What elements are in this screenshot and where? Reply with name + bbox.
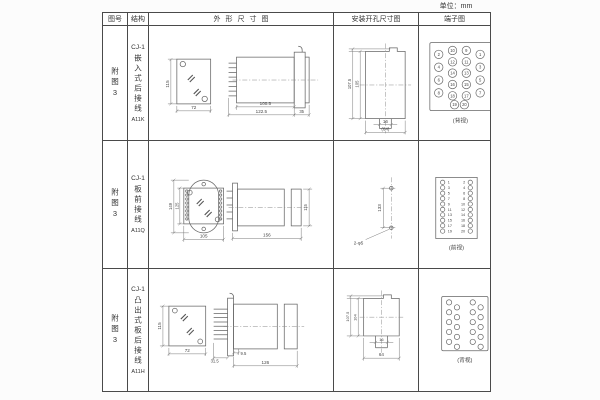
terminal-pin — [454, 314, 459, 319]
terminal-number: 2 — [438, 51, 441, 56]
terminal-pin — [219, 205, 221, 207]
holes-callout: 2-φ5 — [354, 240, 364, 245]
terminal-pin — [186, 193, 188, 195]
terminal-pin — [468, 218, 472, 222]
dim-front-width: 72 — [191, 104, 197, 109]
view-caption: (背视) — [457, 356, 472, 364]
terminal-number: 3 — [448, 186, 450, 190]
terminal-pin — [468, 228, 472, 232]
row1-outline-cell: 115 72 100.5 122.5 35 — [149, 26, 334, 141]
fig-no-label: 附图3 — [110, 188, 121, 221]
terminal-pin — [440, 201, 444, 205]
front-dim-lines — [160, 304, 207, 355]
terminal-pin — [454, 334, 459, 339]
row3-terminal-cell: (背视) — [419, 269, 491, 392]
dim-gap: 9.5 — [241, 350, 247, 355]
pin-cluster-right-outer — [478, 304, 483, 349]
dim-total-length: 126 — [262, 360, 270, 365]
terminal-number: 8 — [438, 90, 441, 95]
dim-inner-height: 105 — [355, 79, 360, 87]
terminal-number: 12 — [461, 207, 465, 211]
row1-outline-drawing: 115 72 100.5 122.5 35 — [149, 26, 333, 141]
terminal-pin — [440, 185, 444, 189]
terminal-pin — [478, 324, 483, 329]
terminal-bottom-pair: 1920 — [450, 100, 468, 108]
terminal-number: 20 — [462, 102, 467, 107]
mounting-dim-lines — [366, 186, 396, 239]
dim-flange-height: 149 — [168, 202, 173, 210]
terminal-pin — [454, 344, 459, 349]
terminal-number: 15 — [464, 81, 469, 86]
terminal-pin — [440, 228, 444, 232]
row2-terminal-cell: 135791113151719 2468101214161820 (前视) — [419, 141, 491, 269]
side-view-outline — [229, 46, 310, 108]
terminal-pin — [468, 207, 472, 211]
terminal-number: 17 — [448, 224, 452, 228]
row1-mounting-drawing: 107.5 105 16 (64) — [334, 26, 418, 141]
terminal-number: 14 — [450, 70, 455, 75]
terminal-pin — [470, 309, 475, 314]
dim-outer-height: 107.5 — [345, 310, 350, 321]
model-prefix: CJ-1 — [131, 286, 145, 293]
model-prefix: CJ-1 — [131, 175, 145, 182]
terminal-number: 7 — [448, 196, 450, 200]
dim-front-width: 105 — [200, 233, 208, 238]
dim-outer-height: 107.5 — [347, 78, 352, 89]
terminal-number: 13 — [464, 70, 469, 75]
terminal-col-outer-right: 1357 — [476, 50, 484, 97]
terminal-pin — [440, 218, 444, 222]
row2-outline-drawing: 149 125 105 156 115 — [149, 141, 333, 269]
terminal-pin — [468, 185, 472, 189]
dim-body-length: 100.5 — [260, 101, 272, 106]
terminal-pin — [219, 209, 221, 211]
terminal-pin — [470, 299, 475, 304]
terminal-number: 19 — [452, 102, 457, 107]
fig-no-label: 附图3 — [110, 67, 121, 100]
terminal-pin — [186, 201, 188, 203]
front-dim-lines — [168, 58, 212, 113]
terminal-number: 4 — [463, 186, 465, 190]
terminal-number: 17 — [464, 93, 469, 98]
terminal-number: 13 — [448, 213, 452, 217]
terminal-number: 5 — [448, 191, 450, 195]
terminal-pin — [446, 299, 451, 304]
terminal-pin — [470, 319, 475, 324]
header-mounting: 安装开孔尺寸图 — [334, 13, 419, 26]
terminal-col-right: 2468101214161820 — [461, 180, 472, 233]
dim-total-width: 64 — [379, 352, 385, 357]
terminal-pin — [186, 217, 188, 219]
terminal-number: 1 — [479, 51, 482, 56]
side-view-outline — [227, 183, 302, 231]
row1-structure: CJ-1 嵌入式后接线 A11K — [128, 26, 149, 141]
terminal-number: 6 — [463, 191, 465, 195]
terminal-col-outer-left: 2468 — [434, 50, 442, 97]
terminal-pin — [446, 329, 451, 334]
terminal-number: 10 — [450, 47, 455, 52]
terminal-pin — [186, 197, 188, 199]
header-outline: 外形尺寸图 — [149, 13, 334, 26]
structure-label: 凸出式板后接线 — [133, 296, 144, 366]
terminal-pin — [446, 339, 451, 344]
terminal-number: 14 — [461, 213, 465, 217]
mounting-dim-lines — [349, 47, 407, 134]
header-fig-no: 图号 — [103, 13, 128, 26]
spec-table: 图号 结构 外形尺寸图 安装开孔尺寸图 端子图 附图3 CJ-1 嵌入式后接线 … — [102, 12, 491, 392]
terminal-pin — [186, 205, 188, 207]
dim-pin-length: 31.5 — [211, 358, 220, 363]
dim-total-length: 122.5 — [256, 109, 268, 114]
view-caption: (背视) — [453, 116, 468, 124]
row3-mounting-drawing: 107.5 104 16 64 — [334, 269, 418, 392]
terminal-pin — [440, 190, 444, 194]
terminal-number: 8 — [463, 196, 465, 200]
row2-mounting-drawing: 133 2-φ5 — [334, 141, 418, 269]
terminal-pin — [478, 314, 483, 319]
center-lines — [360, 290, 403, 352]
terminal-pin — [468, 212, 472, 216]
dim-total-width: (64) — [381, 126, 390, 131]
terminal-pin — [454, 304, 459, 309]
terminal-col-inner-left: 1012141618 — [448, 46, 456, 100]
terminal-number: 7 — [479, 90, 482, 95]
terminal-number: 2 — [463, 180, 465, 184]
terminal-pin — [440, 196, 444, 200]
front-view-outline — [169, 306, 206, 346]
terminal-pin — [440, 207, 444, 211]
terminal-pin — [440, 223, 444, 227]
dim-body-height: 125 — [174, 201, 179, 209]
model-code: A11H — [131, 369, 144, 375]
row3-terminal-diagram: (背视) — [419, 269, 490, 392]
fig-no-label: 附图3 — [110, 314, 121, 347]
row1-fig-no: 附图3 — [103, 26, 128, 141]
row3-outline-drawing: 115 72 31.5 9.5 126 — [149, 269, 333, 392]
terminal-number: 9 — [465, 47, 468, 52]
dim-slot-width: 16 — [379, 337, 384, 342]
terminal-pin — [219, 213, 221, 215]
row3-mounting-cell: 107.5 104 16 64 — [334, 269, 419, 392]
terminal-pin — [468, 201, 472, 205]
terminal-pin — [219, 201, 221, 203]
row2-mounting-cell: 133 2-φ5 — [334, 141, 419, 269]
model-code: A11K — [131, 117, 144, 123]
dim-side-length: 156 — [263, 232, 271, 237]
terminal-pin — [468, 190, 472, 194]
terminal-pin — [468, 223, 472, 227]
front-view-outline — [184, 180, 224, 233]
side-view-outline — [214, 293, 298, 356]
terminal-number: 4 — [438, 64, 441, 69]
dim-side-height: 115 — [303, 203, 308, 210]
front-pin-column-right — [219, 189, 221, 219]
terminal-pin — [478, 334, 483, 339]
structure-label: 板前接线 — [133, 185, 144, 225]
terminal-number: 9 — [448, 202, 450, 206]
terminal-pin — [186, 213, 188, 215]
terminal-number: 16 — [450, 81, 455, 86]
terminal-pin — [219, 197, 221, 199]
terminal-pin — [219, 189, 221, 191]
dim-inner-height: 104 — [353, 313, 358, 320]
row3-outline-cell: 115 72 31.5 9.5 126 — [149, 269, 334, 392]
view-caption: (前视) — [449, 243, 464, 251]
pin-cluster-right-inner — [470, 299, 475, 344]
terminal-pin — [219, 193, 221, 195]
row3-structure: CJ-1 凸出式板后接线 A11H — [128, 269, 149, 392]
row1-terminal-cell: 2468 1012141618 911131517 1357 1920 (背视) — [419, 26, 491, 141]
terminal-number: 19 — [448, 229, 452, 233]
dim-front-width: 72 — [185, 347, 191, 352]
terminal-pin — [470, 339, 475, 344]
terminal-pin — [440, 180, 444, 184]
structure-label: 嵌入式后接线 — [133, 54, 144, 114]
dim-front-height: 115 — [157, 321, 162, 329]
terminal-number: 11 — [464, 59, 469, 64]
terminal-pin — [468, 196, 472, 200]
terminal-pin — [454, 324, 459, 329]
dim-panel-width: 35 — [299, 109, 304, 114]
terminal-number: 18 — [450, 93, 455, 98]
terminal-pin — [478, 304, 483, 309]
front-pin-column-left — [186, 189, 188, 219]
terminal-number: 18 — [461, 224, 465, 228]
terminal-pin — [446, 319, 451, 324]
row3-fig-no: 附图3 — [103, 269, 128, 392]
row2-outline-cell: 149 125 105 156 115 — [149, 141, 334, 269]
terminal-pin — [446, 309, 451, 314]
front-view-outline — [177, 59, 211, 104]
terminal-number: 20 — [461, 229, 465, 233]
row2-terminal-diagram: 135791113151719 2468101214161820 (前视) — [419, 141, 490, 269]
terminal-number: 10 — [461, 202, 465, 206]
model-prefix: CJ-1 — [131, 44, 145, 51]
model-code: A11Q — [131, 228, 145, 234]
header-structure: 结构 — [128, 13, 149, 26]
terminal-number: 6 — [438, 77, 441, 82]
terminal-pin — [468, 180, 472, 184]
mounting-dim-lines — [347, 294, 401, 360]
side-dim-lines — [231, 187, 312, 240]
header-terminal: 端子图 — [419, 13, 491, 26]
terminal-number: 5 — [479, 77, 482, 82]
terminal-pin — [440, 212, 444, 216]
terminal-number: 11 — [448, 207, 452, 211]
row1-terminal-diagram: 2468 1012141618 911131517 1357 1920 (背视) — [419, 26, 490, 141]
terminal-col-inner-right: 911131517 — [462, 46, 470, 100]
dim-front-height: 115 — [165, 79, 170, 87]
row1-mounting-cell: 107.5 105 16 (64) — [334, 26, 419, 141]
terminal-number: 16 — [461, 218, 465, 222]
terminal-number: 3 — [479, 64, 482, 69]
catalog-page: 单位：mm 图号 结构 外形尺寸图 安装开孔尺寸图 端子图 附图3 CJ-1 嵌… — [0, 0, 600, 400]
pin-cluster-left-outer — [446, 299, 451, 344]
terminal-col-left: 135791113151719 — [440, 180, 451, 233]
terminal-number: 12 — [450, 59, 455, 64]
side-dim-lines — [212, 342, 299, 367]
pin-cluster-left-inner — [454, 304, 459, 349]
dim-hole-spacing: 133 — [377, 203, 382, 211]
row2-structure: CJ-1 板前接线 A11Q — [128, 141, 149, 269]
terminal-number: 1 — [448, 180, 450, 184]
terminal-pin — [470, 329, 475, 334]
dim-slot-width: 16 — [383, 119, 389, 124]
row2-fig-no: 附图3 — [103, 141, 128, 269]
terminal-pin — [186, 209, 188, 211]
terminal-pin — [478, 344, 483, 349]
terminal-number: 15 — [448, 218, 452, 222]
